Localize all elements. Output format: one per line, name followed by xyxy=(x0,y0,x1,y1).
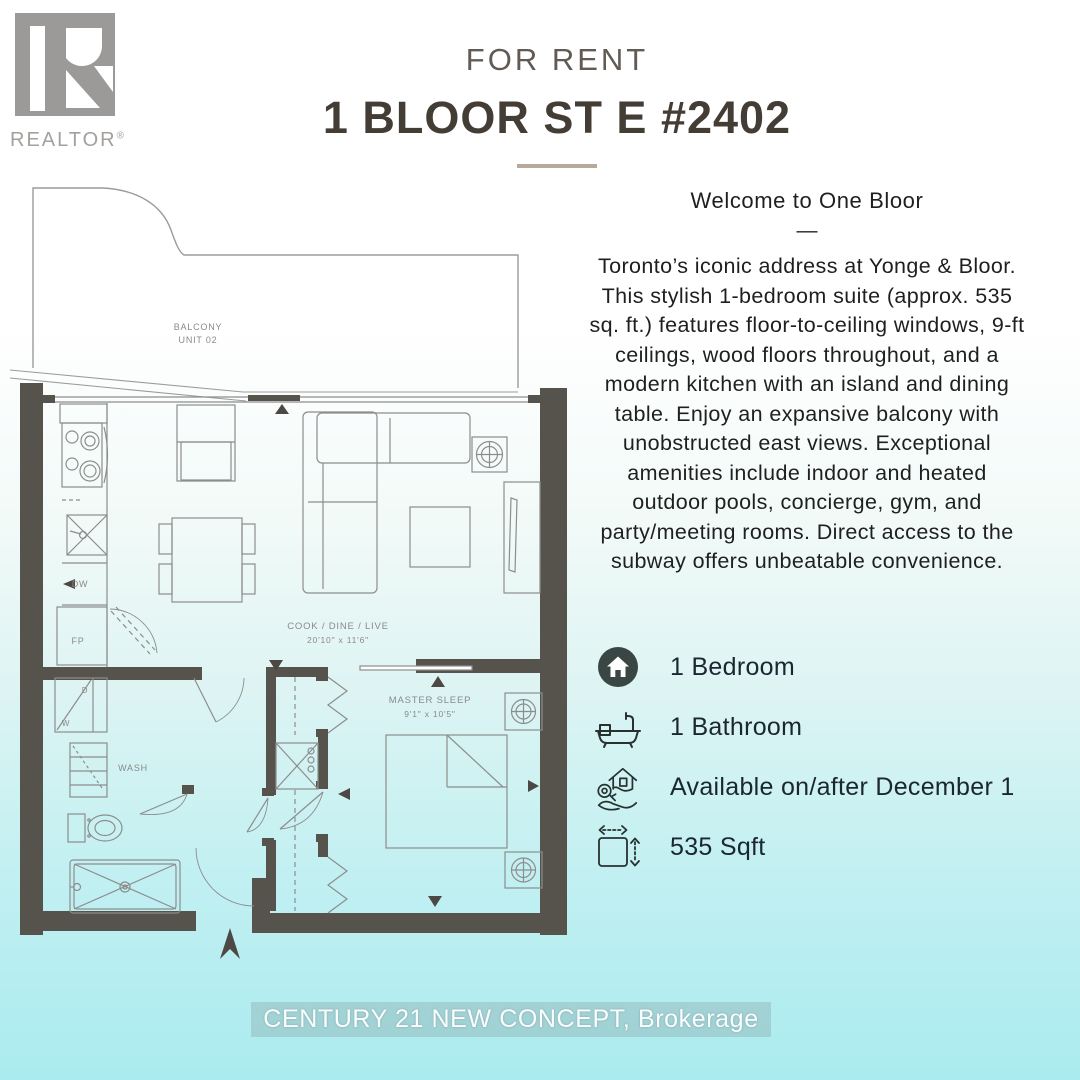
sliding-panel xyxy=(360,666,472,670)
balcony-label: BALCONY xyxy=(174,322,223,332)
stove xyxy=(62,423,108,487)
wash-label: WASH xyxy=(118,763,148,773)
wash-hall-door xyxy=(247,798,268,832)
for-rent-label: FOR RENT xyxy=(34,42,1080,78)
dining-table xyxy=(159,518,255,602)
kitchen-sink xyxy=(67,515,107,555)
wall-a-door xyxy=(194,678,244,722)
toilet xyxy=(68,814,122,842)
kitchen xyxy=(57,403,157,667)
brokerage-name: CENTURY 21 NEW CONCEPT, Brokerage xyxy=(251,1002,770,1037)
living-room xyxy=(303,412,540,593)
page-title: 1 BLOOR ST E #2402 xyxy=(34,92,1080,144)
welcome-heading: Welcome to One Bloor xyxy=(588,188,1026,214)
master-dimensions: 9'1" x 10'5" xyxy=(404,709,456,719)
feature-bedroom: 1 Bedroom xyxy=(592,644,1062,690)
feature-area: 535 Sqft xyxy=(592,824,1062,870)
fp-label: FP xyxy=(71,636,84,646)
linen-closet xyxy=(70,743,107,797)
nightstand-top xyxy=(505,693,542,730)
balcony-unit-label: UNIT 02 xyxy=(179,335,218,345)
floor-area-icon xyxy=(592,822,644,872)
dining-area xyxy=(159,405,255,602)
living-dimensions: 20'10" x 11'6" xyxy=(307,635,369,645)
bifold-door-top xyxy=(328,677,347,733)
side-table-lamp xyxy=(472,437,507,472)
feature-label: 535 Sqft xyxy=(670,833,766,862)
floor-plan: BALCONY UNIT 02 xyxy=(10,180,570,962)
balcony-outline xyxy=(10,188,518,401)
living-label: COOK / DINE / LIVE xyxy=(287,621,389,632)
key-handover-icon xyxy=(592,761,644,813)
plan-markers xyxy=(63,404,539,907)
dw-label: DW xyxy=(72,579,89,589)
north-arrow xyxy=(220,928,240,959)
hall-door xyxy=(280,792,323,829)
dryer-label: D xyxy=(82,686,89,695)
header: FOR RENT 1 BLOOR ST E #2402 xyxy=(34,42,1080,168)
feature-label: 1 Bedroom xyxy=(670,653,795,682)
description-body: Toronto’s iconic address at Yonge & Bloo… xyxy=(588,252,1026,577)
feature-list: 1 Bedroom 1 Bathroom xyxy=(592,644,1062,884)
feature-bathroom: 1 Bathroom xyxy=(592,704,1062,750)
bathtub-icon xyxy=(592,705,644,749)
laundry-closet xyxy=(276,743,318,789)
entry-door-arc xyxy=(196,848,254,906)
dash-separator: — xyxy=(588,219,1026,243)
kitchen-door xyxy=(110,607,157,654)
footer: CENTURY 21 NEW CONCEPT, Brokerage xyxy=(0,1002,1022,1037)
tv-console xyxy=(504,482,540,593)
bifold-door-bottom xyxy=(328,857,347,913)
feature-label: 1 Bathroom xyxy=(670,713,802,742)
flyer-page: REALTOR® FOR RENT 1 BLOOR ST E #2402 BAL… xyxy=(0,0,1080,1080)
bathroom-door xyxy=(140,794,187,815)
house-icon xyxy=(592,646,644,688)
kitchen-island xyxy=(177,405,235,481)
master-label: MASTER SLEEP xyxy=(389,695,471,706)
nightstand-bottom xyxy=(505,852,542,888)
bathroom xyxy=(55,678,254,913)
bed xyxy=(386,735,507,848)
sofa xyxy=(303,412,470,593)
bathtub xyxy=(70,860,180,913)
description-column: Welcome to One Bloor — Toronto’s iconic … xyxy=(588,188,1026,577)
washer-label: W xyxy=(62,719,70,728)
feature-label: Available on/after December 1 xyxy=(670,773,1015,802)
tan-divider xyxy=(517,164,597,168)
coffee-table xyxy=(410,507,470,567)
feature-availability: Available on/after December 1 xyxy=(592,764,1062,810)
